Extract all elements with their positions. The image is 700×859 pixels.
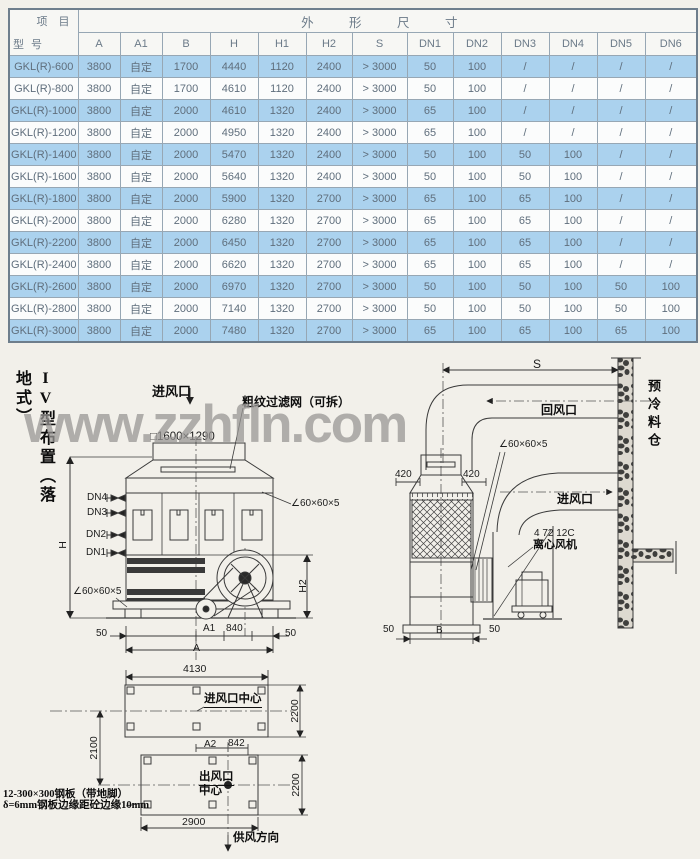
value-cell: > 3000: [352, 232, 407, 254]
value-cell: 2000: [162, 210, 210, 232]
model-cell: GKL(R)-2600: [9, 276, 78, 298]
model-cell: GKL(R)-800: [9, 78, 78, 100]
value-cell: 7140: [210, 298, 258, 320]
s-label: S: [533, 358, 541, 370]
value-cell: /: [597, 188, 645, 210]
value-cell: 2000: [162, 122, 210, 144]
model-cell: GKL(R)-1600: [9, 166, 78, 188]
value-cell: 50: [407, 298, 453, 320]
dn2-stub: [107, 531, 126, 539]
value-cell: 1320: [258, 298, 306, 320]
value-cell: 2700: [306, 276, 352, 298]
spec-table-body: GKL(R)-6003800自定1700444011202400> 300050…: [9, 56, 697, 343]
value-cell: 50: [501, 166, 549, 188]
corner-item-label: 项 目: [36, 13, 73, 29]
value-cell: 2000: [162, 232, 210, 254]
value-cell: 4950: [210, 122, 258, 144]
value-cell: /: [597, 78, 645, 100]
value-cell: 1320: [258, 232, 306, 254]
dn1-stub: [107, 549, 126, 557]
side-50-left: 50: [383, 625, 394, 635]
value-cell: 65: [407, 254, 453, 276]
value-cell: /: [597, 100, 645, 122]
value-cell: 3800: [78, 100, 120, 122]
table-row: GKL(R)-22003800自定2000645013202700> 30006…: [9, 232, 697, 254]
value-cell: 100: [549, 298, 597, 320]
fan-motor: [512, 572, 552, 618]
column-header-dn2: DN2: [453, 33, 501, 56]
value-cell: 1320: [258, 100, 306, 122]
value-cell: 3800: [78, 298, 120, 320]
value-cell: /: [549, 78, 597, 100]
value-cell: 3800: [78, 78, 120, 100]
model-cell: GKL(R)-1800: [9, 188, 78, 210]
value-cell: 2400: [306, 144, 352, 166]
value-cell: /: [645, 232, 697, 254]
value-cell: 1320: [258, 166, 306, 188]
flex-connector: [471, 558, 492, 602]
value-cell: /: [645, 100, 697, 122]
value-cell: 自定: [120, 276, 162, 298]
table-row: GKL(R)-10003800自定2000461013202400> 30006…: [9, 100, 697, 122]
front-a1: A1: [203, 624, 215, 634]
value-cell: 50: [407, 166, 453, 188]
value-cell: 50: [407, 78, 453, 100]
value-cell: 100: [549, 276, 597, 298]
value-cell: 自定: [120, 254, 162, 276]
value-cell: 5470: [210, 144, 258, 166]
value-cell: > 3000: [352, 188, 407, 210]
value-cell: 6450: [210, 232, 258, 254]
value-cell: 自定: [120, 166, 162, 188]
value-cell: /: [597, 210, 645, 232]
table-row: GKL(R)-14003800自定2000547013202400> 30005…: [9, 144, 697, 166]
side-420-left: 420: [395, 470, 412, 480]
table-row: GKL(R)-12003800自定2000495013202400> 30006…: [9, 122, 697, 144]
value-cell: 50: [501, 298, 549, 320]
value-cell: 1700: [162, 78, 210, 100]
value-cell: 2400: [306, 100, 352, 122]
column-header-h: H: [210, 33, 258, 56]
value-cell: > 3000: [352, 56, 407, 78]
value-cell: 100: [453, 166, 501, 188]
model-cell: GKL(R)-2200: [9, 232, 78, 254]
column-header-h1: H1: [258, 33, 306, 56]
front-angle-right-label: ∠60×60×5: [291, 499, 339, 509]
value-cell: 65: [407, 122, 453, 144]
value-cell: 50: [501, 144, 549, 166]
plan-2200-bottom: 2200: [291, 773, 302, 796]
value-cell: 100: [549, 254, 597, 276]
steel-plate-note-2: δ=6mm钢板边缘距砼边缘10mm: [3, 801, 149, 812]
value-cell: > 3000: [352, 122, 407, 144]
corner-model-label: 型 号: [13, 36, 44, 52]
front-840: 840: [226, 624, 243, 634]
value-cell: > 3000: [352, 78, 407, 100]
value-cell: /: [501, 56, 549, 78]
value-cell: 2000: [162, 144, 210, 166]
value-cell: 100: [645, 298, 697, 320]
value-cell: /: [645, 122, 697, 144]
value-cell: /: [549, 122, 597, 144]
value-cell: 2700: [306, 298, 352, 320]
steel-plate-note-1: 12-300×300钢板（带地脚）: [3, 790, 128, 801]
column-header-row: AA1BHH1H2SDN1DN2DN3DN4DN5DN6: [9, 33, 697, 56]
plan-842: 842: [228, 739, 245, 749]
value-cell: 6280: [210, 210, 258, 232]
value-cell: 6970: [210, 276, 258, 298]
value-cell: 自定: [120, 144, 162, 166]
value-cell: 自定: [120, 232, 162, 254]
table-row: GKL(R)-24003800自定2000662013202700> 30006…: [9, 254, 697, 276]
value-cell: 2000: [162, 100, 210, 122]
table-row: GKL(R)-8003800自定1700461011202400> 300050…: [9, 78, 697, 100]
return-air-label: 回风口: [541, 404, 577, 416]
value-cell: /: [597, 254, 645, 276]
value-cell: 50: [407, 56, 453, 78]
value-cell: 2700: [306, 210, 352, 232]
plan-4130: 4130: [183, 664, 206, 675]
side-angle-leader2: [476, 452, 505, 570]
table-row: GKL(R)-18003800自定2000590013202700> 30006…: [9, 188, 697, 210]
front-angle-left-label: ∠60×60×5: [73, 587, 121, 597]
column-header-h2: H2: [306, 33, 352, 56]
duct-size-label: □1600×1290: [150, 432, 215, 444]
inlet-center-label: 进风口中心: [204, 694, 262, 708]
value-cell: 6620: [210, 254, 258, 276]
column-header-b: B: [162, 33, 210, 56]
value-cell: 5640: [210, 166, 258, 188]
side-inlet-label: 进风口: [557, 493, 593, 505]
value-cell: 100: [453, 276, 501, 298]
value-cell: /: [549, 56, 597, 78]
value-cell: 4610: [210, 100, 258, 122]
table-row: GKL(R)-6003800自定1700444011202400> 300050…: [9, 56, 697, 78]
column-header-dn1: DN1: [407, 33, 453, 56]
value-cell: 3800: [78, 144, 120, 166]
side-angle-label: ∠60×60×5: [499, 440, 547, 450]
value-cell: 1320: [258, 254, 306, 276]
dn2-label: DN2: [86, 530, 106, 540]
value-cell: 2400: [306, 78, 352, 100]
value-cell: /: [597, 232, 645, 254]
value-cell: 3800: [78, 122, 120, 144]
value-cell: 100: [453, 232, 501, 254]
value-cell: 2400: [306, 56, 352, 78]
foot-left: [125, 609, 141, 618]
value-cell: /: [501, 122, 549, 144]
precool-bin-label: 预冷料仓: [644, 379, 663, 459]
value-cell: 100: [549, 166, 597, 188]
value-cell: 50: [407, 144, 453, 166]
value-cell: 65: [407, 232, 453, 254]
column-header-dn3: DN3: [501, 33, 549, 56]
value-cell: 2000: [162, 276, 210, 298]
louver-stripes: [127, 558, 205, 605]
plan-2900: 2900: [182, 817, 205, 828]
value-cell: /: [645, 78, 697, 100]
value-cell: 自定: [120, 188, 162, 210]
value-cell: 2400: [306, 122, 352, 144]
value-cell: > 3000: [352, 276, 407, 298]
corner-cell: 项 目 型 号: [9, 9, 78, 56]
catalog-page: 项 目 型 号 外 形 尺 寸 AA1BHH1H2SDN1DN2DN3DN4DN…: [0, 0, 700, 859]
value-cell: /: [645, 210, 697, 232]
value-cell: 100: [453, 144, 501, 166]
dn4-label: DN4: [87, 493, 107, 503]
value-cell: 100: [549, 210, 597, 232]
value-cell: 自定: [120, 78, 162, 100]
value-cell: 2000: [162, 188, 210, 210]
value-cell: 自定: [120, 298, 162, 320]
value-cell: > 3000: [352, 144, 407, 166]
value-cell: 自定: [120, 56, 162, 78]
hood: [126, 460, 273, 478]
value-cell: 3800: [78, 210, 120, 232]
value-cell: 1320: [258, 188, 306, 210]
value-cell: > 3000: [352, 166, 407, 188]
value-cell: /: [645, 188, 697, 210]
fan-model-label: 4 72 12C: [534, 529, 575, 539]
foundation-plan-top: [50, 685, 306, 785]
value-cell: 65: [501, 188, 549, 210]
angle-leader-right: [262, 492, 291, 504]
model-cell: GKL(R)-1400: [9, 144, 78, 166]
value-cell: /: [597, 144, 645, 166]
column-header-dn6: DN6: [645, 33, 697, 56]
value-cell: 2700: [306, 188, 352, 210]
plan-a2: A2: [204, 740, 216, 750]
value-cell: 自定: [120, 100, 162, 122]
value-cell: > 3000: [352, 254, 407, 276]
value-cell: /: [645, 166, 697, 188]
value-cell: > 3000: [352, 298, 407, 320]
outlet-center-label-2: 中心: [199, 786, 222, 798]
value-cell: 1320: [258, 144, 306, 166]
value-cell: 100: [453, 298, 501, 320]
value-cell: 3800: [78, 166, 120, 188]
model-cell: GKL(R)-2800: [9, 298, 78, 320]
value-cell: 65: [501, 210, 549, 232]
side-50-right: 50: [489, 625, 500, 635]
value-cell: 50: [597, 298, 645, 320]
column-header-s: S: [352, 33, 407, 56]
value-cell: 1320: [258, 276, 306, 298]
spec-table: 项 目 型 号 外 形 尺 寸 AA1BHH1H2SDN1DN2DN3DN4DN…: [8, 8, 698, 343]
supply-direction-label: 供风方向: [233, 833, 279, 845]
inlet-duct: [153, 443, 245, 460]
value-cell: 50: [407, 276, 453, 298]
value-cell: 4610: [210, 78, 258, 100]
value-cell: 5900: [210, 188, 258, 210]
bin-wall: [618, 358, 633, 628]
value-cell: 100: [453, 188, 501, 210]
value-cell: 自定: [120, 122, 162, 144]
wall-branch: [633, 549, 673, 562]
h-label: H: [58, 541, 69, 549]
model-cell: GKL(R)-2400: [9, 254, 78, 276]
value-cell: 3800: [78, 188, 120, 210]
value-cell: 4440: [210, 56, 258, 78]
fan-label-leader: [508, 547, 533, 567]
value-cell: 1120: [258, 78, 306, 100]
value-cell: 1320: [258, 122, 306, 144]
value-cell: /: [645, 56, 697, 78]
value-cell: 2000: [162, 298, 210, 320]
span-header: 外 形 尺 寸: [78, 9, 697, 33]
value-cell: > 3000: [352, 100, 407, 122]
value-cell: /: [501, 100, 549, 122]
dn-pipe-stubs: [107, 494, 126, 557]
column-header-dn5: DN5: [597, 33, 645, 56]
value-cell: /: [597, 122, 645, 144]
value-cell: 2400: [306, 166, 352, 188]
model-cell: GKL(R)-1000: [9, 100, 78, 122]
value-cell: 100: [549, 188, 597, 210]
value-cell: 2700: [306, 232, 352, 254]
side-view: [396, 358, 676, 644]
value-cell: /: [597, 56, 645, 78]
column-header-a1: A1: [120, 33, 162, 56]
model-cell: GKL(R)-1200: [9, 122, 78, 144]
value-cell: 3800: [78, 276, 120, 298]
value-cell: /: [501, 78, 549, 100]
value-cell: 3800: [78, 254, 120, 276]
value-cell: 100: [549, 232, 597, 254]
dn3-label: DN3: [87, 508, 107, 518]
access-doors: [133, 510, 262, 540]
value-cell: 100: [453, 122, 501, 144]
packing-section: [412, 500, 471, 558]
value-cell: /: [645, 144, 697, 166]
value-cell: 65: [407, 100, 453, 122]
value-cell: 3800: [78, 232, 120, 254]
front-a: A: [193, 643, 200, 654]
value-cell: /: [549, 100, 597, 122]
fan-name-label: 离心风机: [533, 540, 577, 551]
spec-table-wrap: 项 目 型 号 外 形 尺 寸 AA1BHH1H2SDN1DN2DN3DN4DN…: [8, 8, 696, 343]
dn3-stub: [107, 509, 126, 517]
front-inlet-label: 进风口: [152, 385, 191, 398]
value-cell: 2700: [306, 254, 352, 276]
value-cell: 65: [407, 210, 453, 232]
foot-right: [262, 609, 278, 618]
table-row: GKL(R)-20003800自定2000628013202700> 30006…: [9, 210, 697, 232]
value-cell: 1700: [162, 56, 210, 78]
model-cell: GKL(R)-600: [9, 56, 78, 78]
value-cell: 50: [501, 276, 549, 298]
table-row: GKL(R)-16003800自定2000564013202400> 30005…: [9, 166, 697, 188]
value-cell: 100: [645, 276, 697, 298]
value-cell: 65: [407, 188, 453, 210]
filter-slot: [161, 467, 235, 472]
front-50-left: 50: [96, 629, 107, 639]
value-cell: 100: [549, 144, 597, 166]
value-cell: 65: [501, 254, 549, 276]
section-title: IV型布置（落地式）: [9, 370, 57, 520]
filter-note-label: 粗纹过滤网（可拆）: [242, 396, 350, 408]
value-cell: /: [645, 254, 697, 276]
dn4-stub: [107, 494, 126, 502]
value-cell: 100: [453, 254, 501, 276]
value-cell: 100: [453, 210, 501, 232]
value-cell: 1320: [258, 210, 306, 232]
front-50-right: 50: [285, 629, 296, 639]
value-cell: 2000: [162, 254, 210, 276]
return-duct-outer: [426, 385, 618, 470]
value-cell: 100: [453, 78, 501, 100]
column-header-a: A: [78, 33, 120, 56]
value-cell: > 3000: [352, 210, 407, 232]
model-cell: GKL(R)-2000: [9, 210, 78, 232]
value-cell: 65: [501, 232, 549, 254]
outlet-center-label-1: 出风口: [199, 772, 234, 786]
table-row: GKL(R)-28003800自定2000714013202700> 30005…: [9, 298, 697, 320]
h2-label: H2: [298, 579, 309, 592]
dn1-label: DN1: [86, 548, 106, 558]
value-cell: 1120: [258, 56, 306, 78]
value-cell: 100: [453, 100, 501, 122]
side-b: B: [436, 626, 443, 636]
column-header-dn4: DN4: [549, 33, 597, 56]
table-row: GKL(R)-26003800自定2000697013202700> 30005…: [9, 276, 697, 298]
side-420-right: 420: [463, 470, 480, 480]
plan-2100: 2100: [89, 736, 100, 759]
value-cell: 自定: [120, 210, 162, 232]
value-cell: 100: [453, 56, 501, 78]
value-cell: 3800: [78, 56, 120, 78]
value-cell: 2000: [162, 166, 210, 188]
value-cell: 50: [597, 276, 645, 298]
value-cell: /: [597, 166, 645, 188]
plan-2200-top: 2200: [290, 699, 301, 722]
